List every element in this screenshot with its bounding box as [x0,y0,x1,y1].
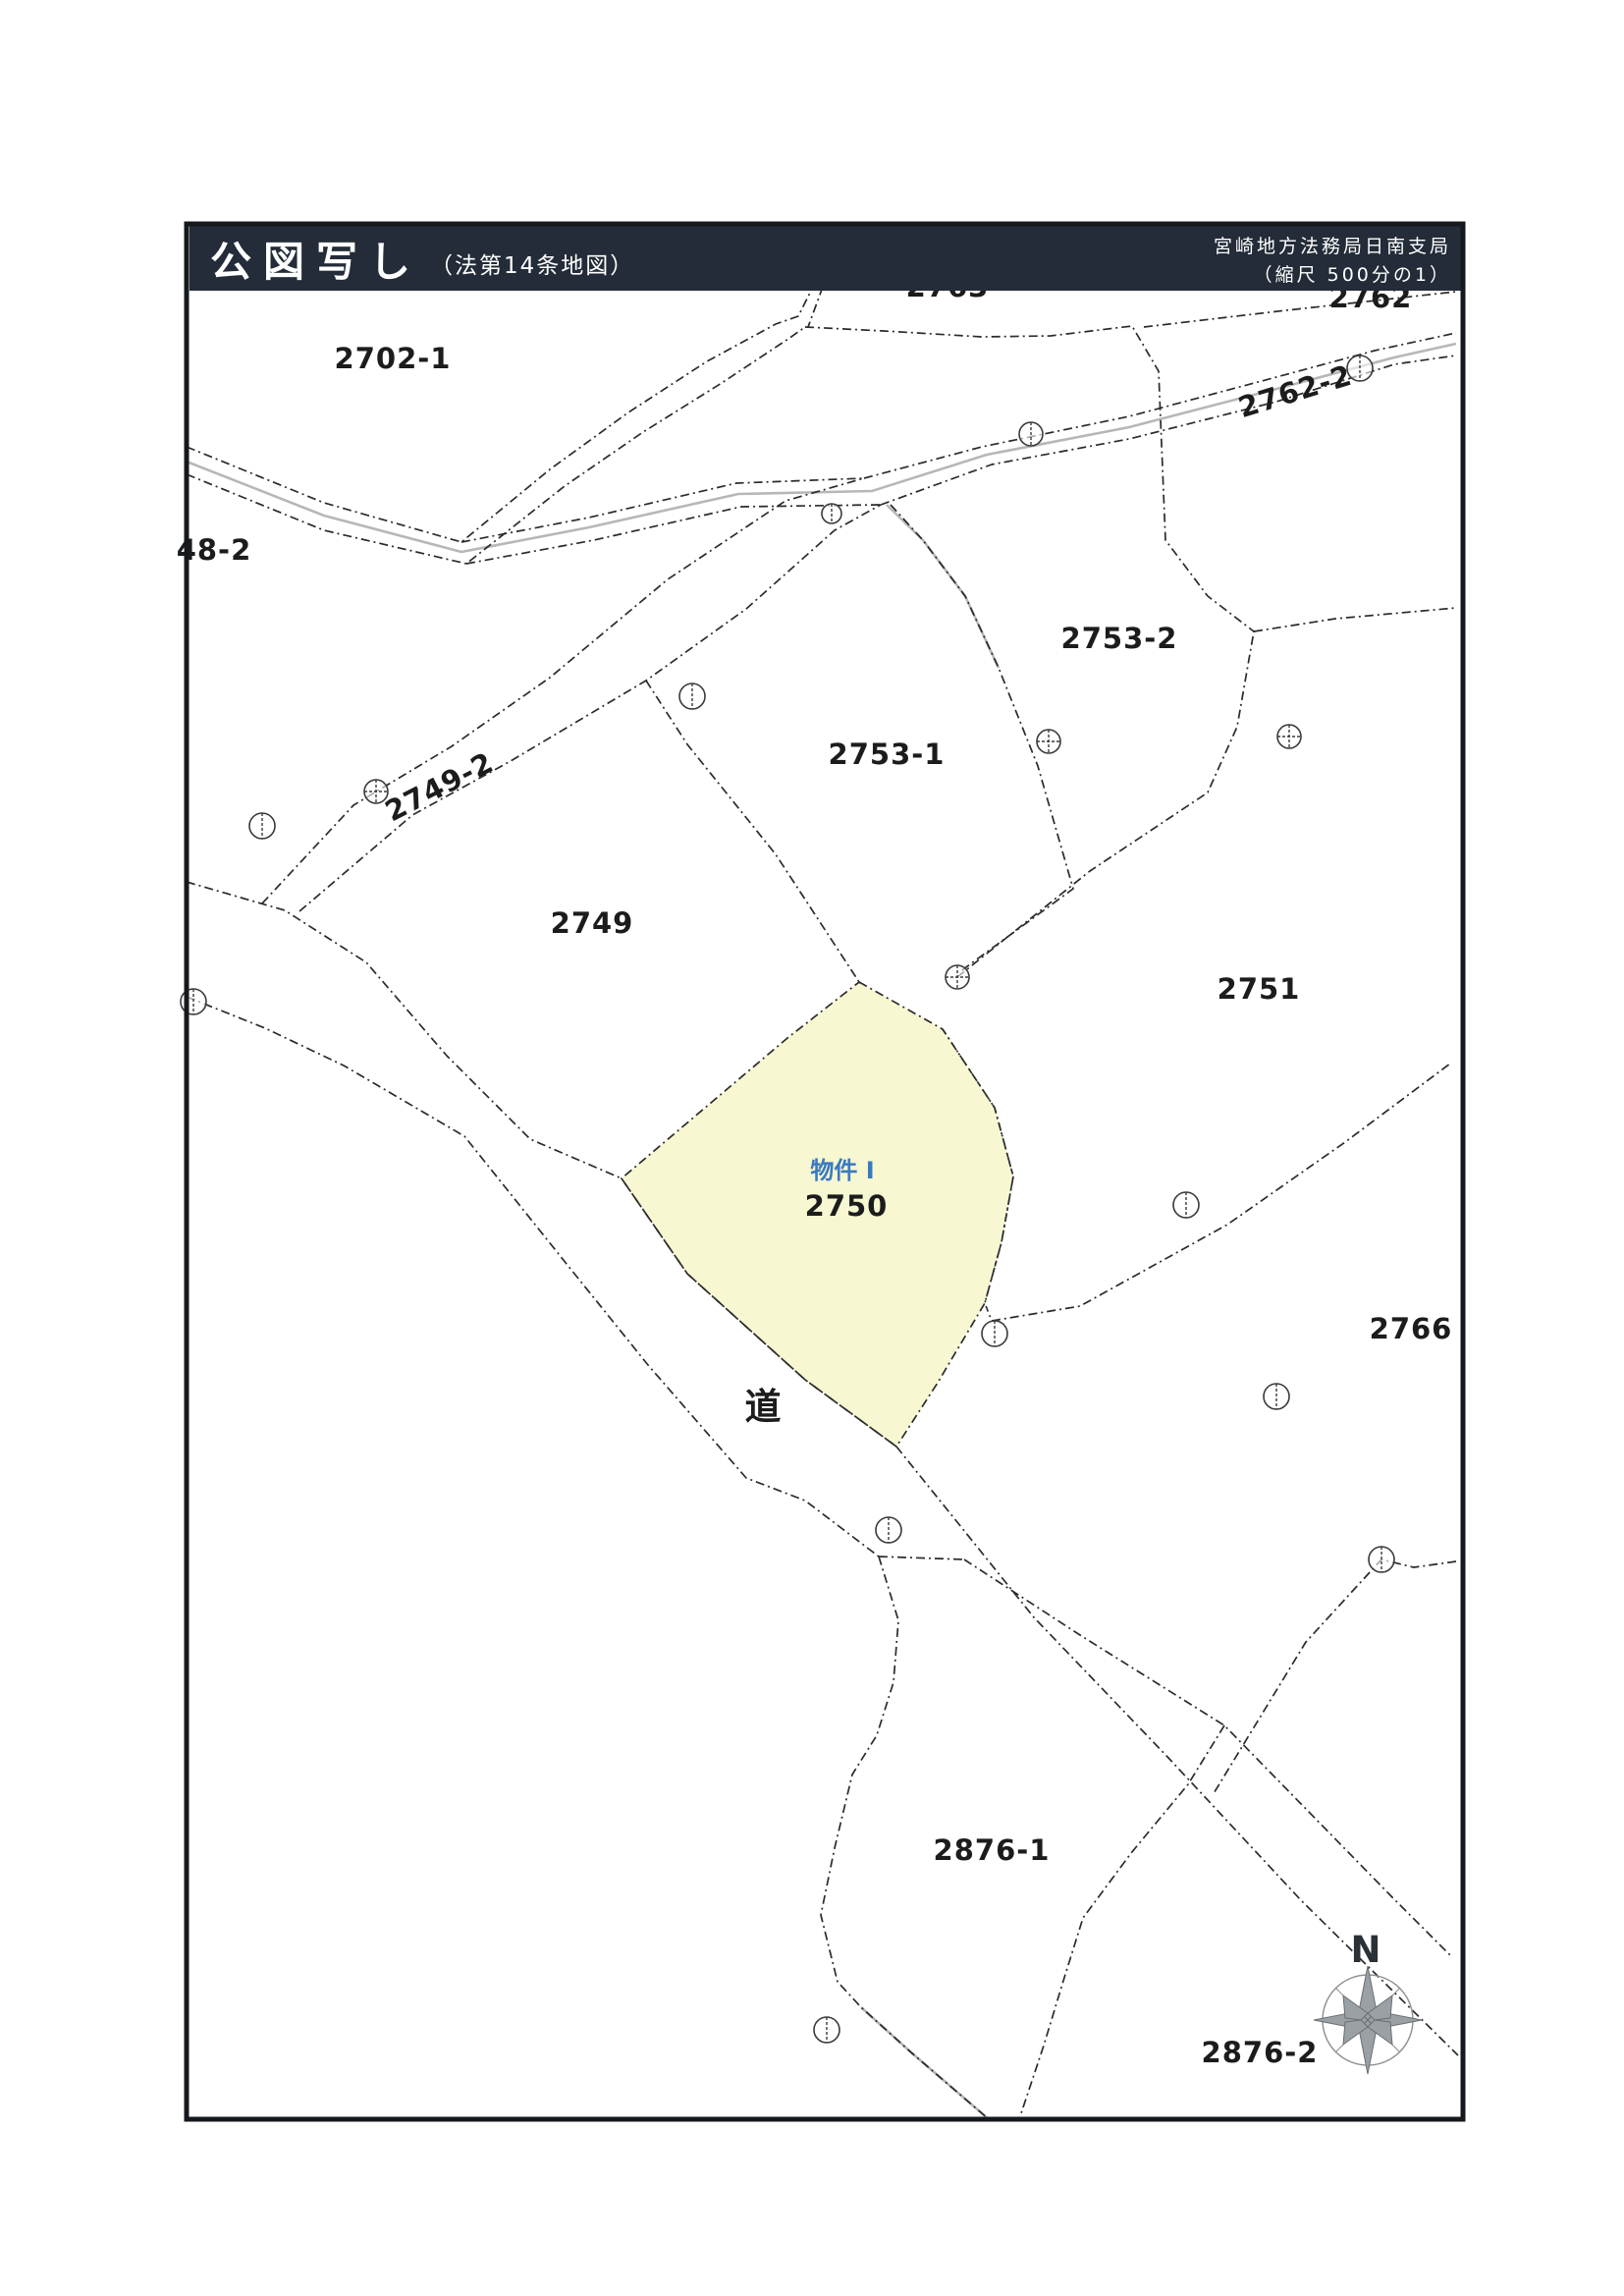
parcel-label-2750: 2750 [805,1189,889,1223]
parcel-label-2753-1: 2753-1 [829,738,946,771]
parcel-label-2751: 2751 [1218,972,1301,1006]
map-scale: （縮尺 500分の1） [1254,264,1451,286]
document-title: 公図写し [210,238,422,286]
parcel-label-2749: 2749 [551,906,634,940]
subject-property-label: 物件 I [810,1157,874,1184]
parcel-label-2766: 2766 [1370,1312,1453,1345]
parcel-label-2753-2: 2753-2 [1061,622,1178,655]
legal-affairs-office: 宮崎地方法務局日南支局 [1214,236,1451,257]
parcel-label-2702-1: 2702-1 [335,342,452,375]
parcel-label-2876-1: 2876-1 [934,1833,1051,1867]
cadastral-map-canvas: 27622763 公図写し （法第14条地図） 宮崎地方法務局日南支局 （縮尺 … [0,0,1624,2296]
road-label: 道 [745,1386,782,1428]
document-subtitle: （法第14条地図） [430,253,634,279]
header-bar: 公図写し （法第14条地図） 宮崎地方法務局日南支局 （縮尺 500分の1） [189,224,1461,291]
compass-north-label: N [1351,1929,1381,1971]
parcel-label-2876-2: 2876-2 [1202,2036,1319,2069]
scanned-cadastral-document: { "header": { "title": "公図写し", "subtitle… [0,0,1624,2296]
